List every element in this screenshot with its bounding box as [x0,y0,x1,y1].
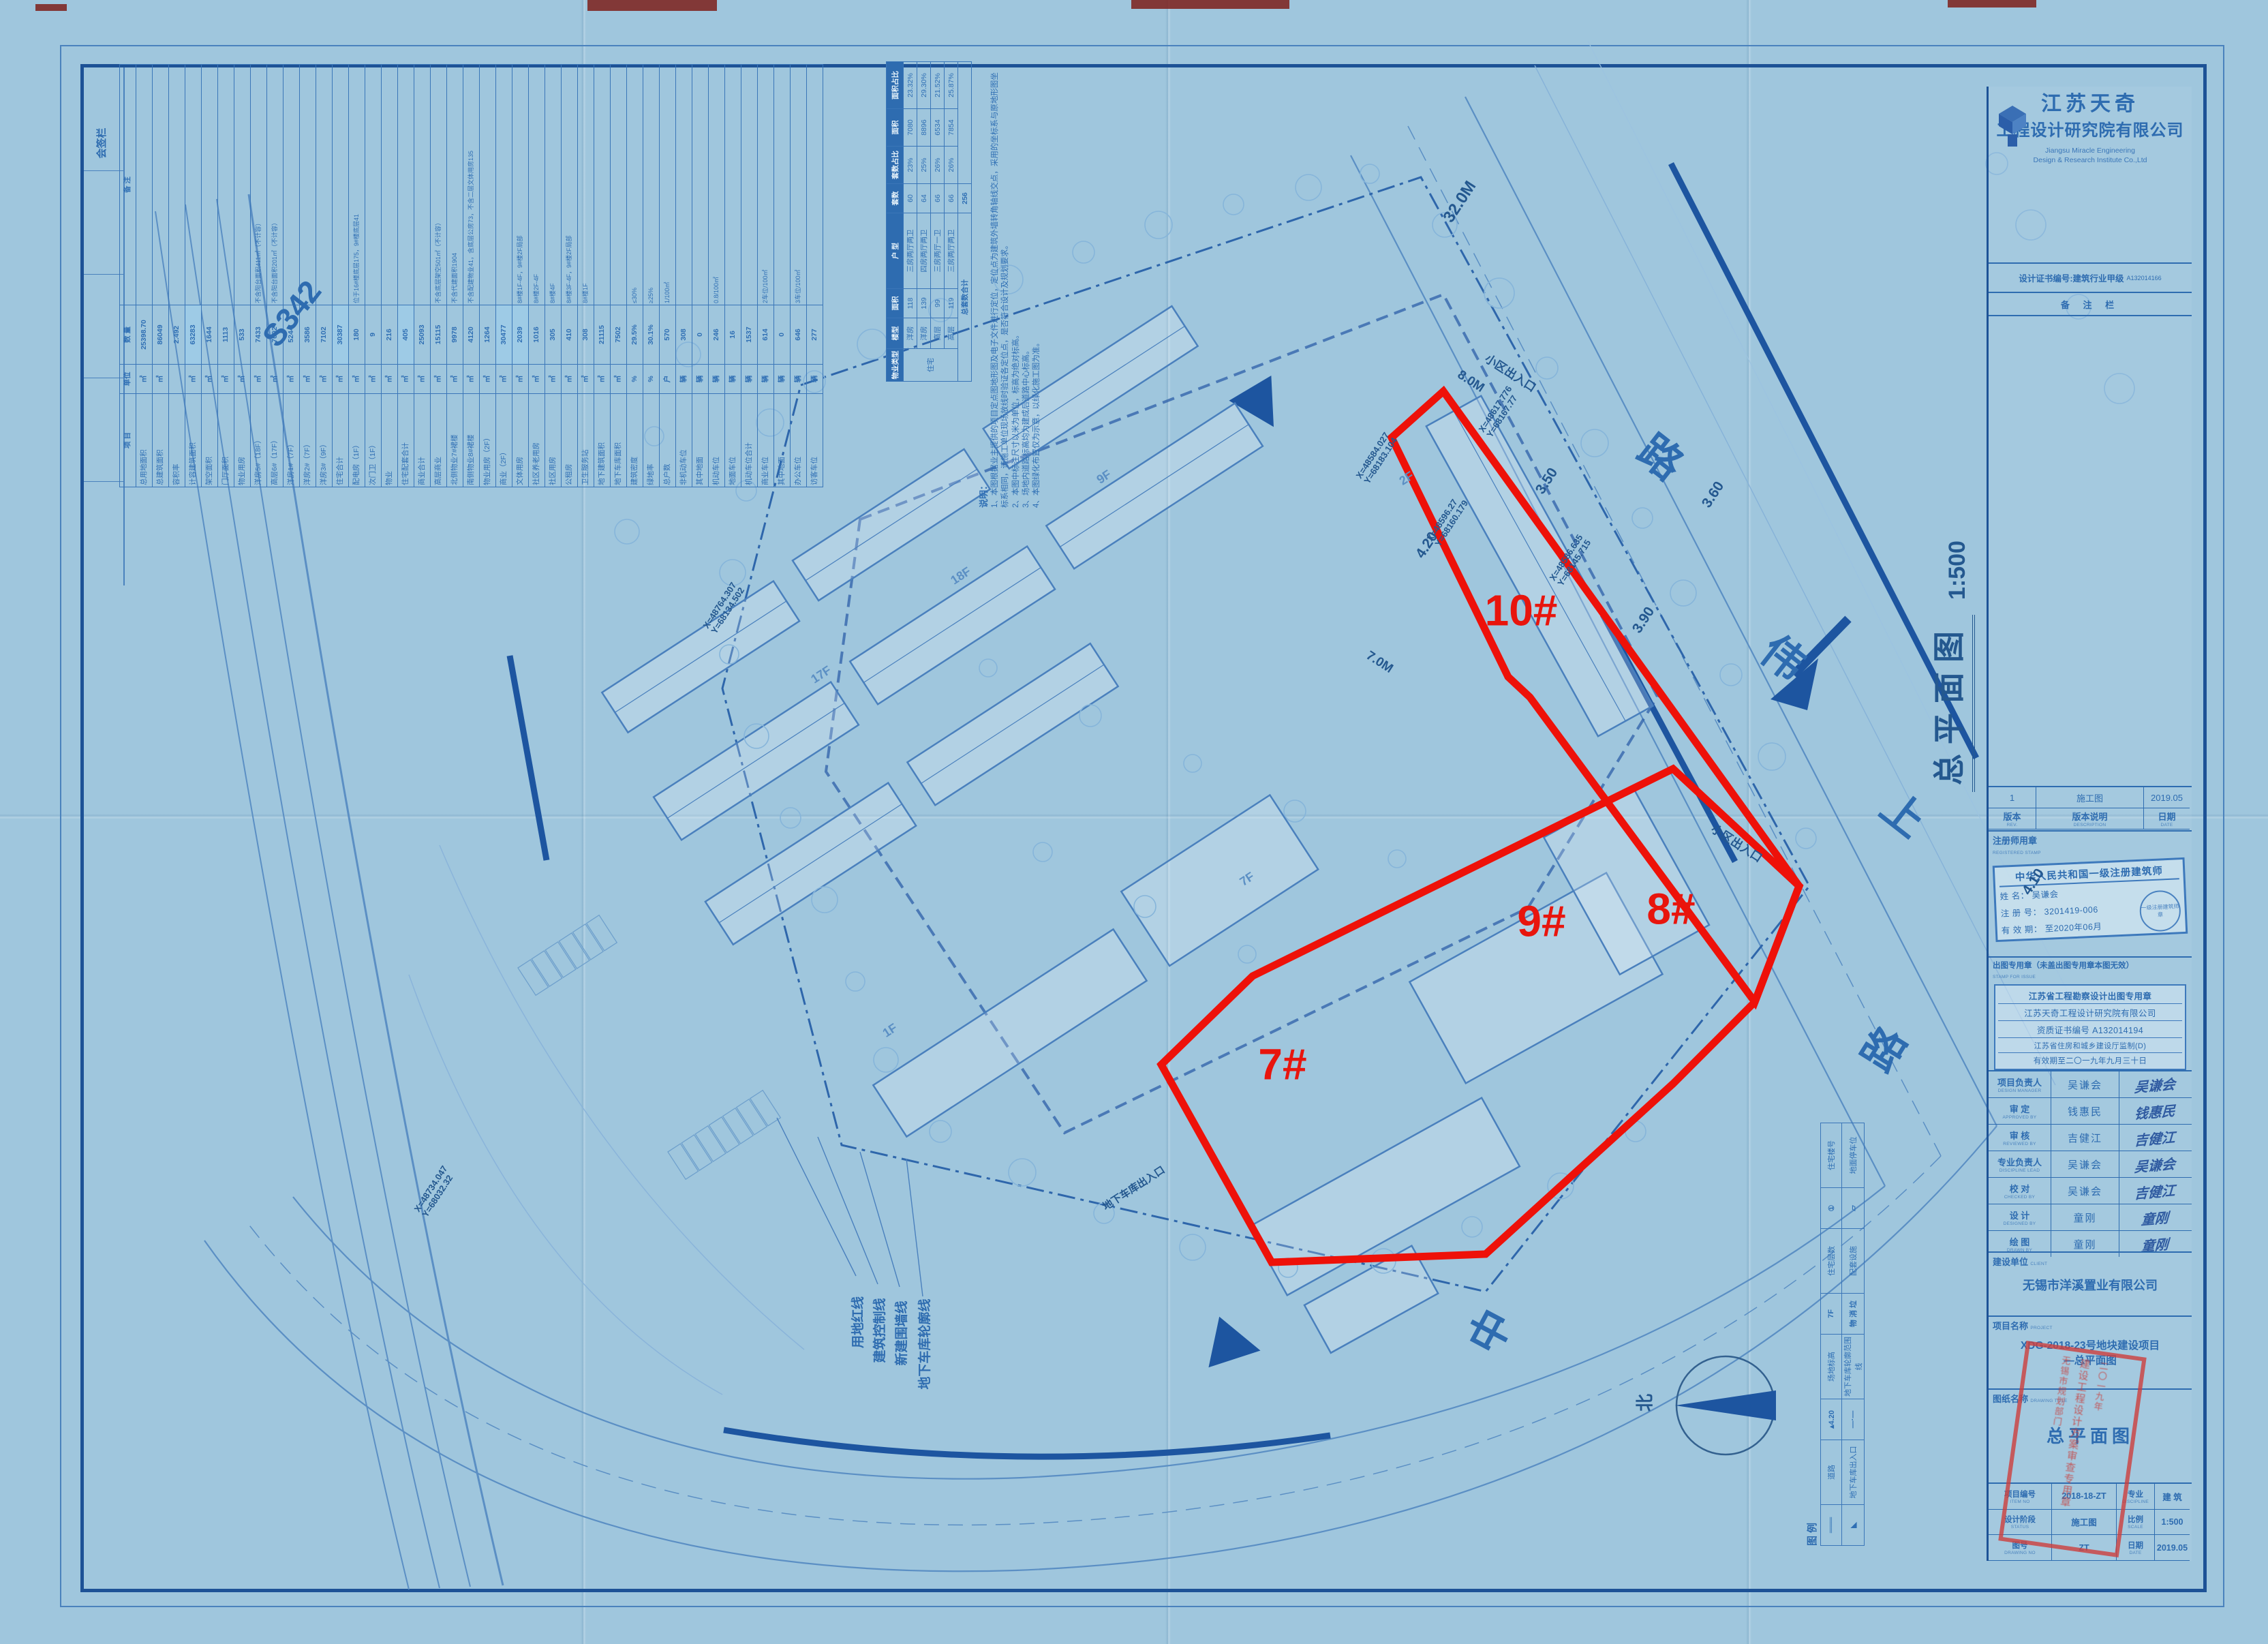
econ-row: 建筑密度%29.5%≤30% [627,65,643,487]
legend-label: 道路 [1821,1440,1842,1505]
econ-row: 住宅合计㎡30387 [333,65,349,487]
parking-stalls [668,1091,780,1180]
unit-row: 高层119三房两厅两卫6626%785425.87% [945,62,958,382]
company-logo-icon [1989,104,2036,148]
note-item: 3、场地内道路标高均为建成后道路中心标高。 [1022,72,1032,508]
company-section: 江苏天奇 工程设计研究院有限公司 Jiangsu Miracle Enginee… [1989,87,2192,262]
econ-row: 绿地率%30.1%≥25% [643,65,660,487]
unit-row: 住宅洋房118三房两厅两卫6023%708023.32% [904,62,917,382]
info-grid-cell: 1:500 [2155,1510,2190,1536]
econ-row: 商业车位辆6142车位/100㎡ [758,65,774,487]
plan-annotation: 北 [1636,1394,1654,1412]
note-item: 1、本图根据业主提供的项目定点图地形图及电子文件进行定位，定位点为建筑外墙转角轴… [990,72,1011,508]
econ-row: 访客车位辆277 [807,65,823,487]
unit-row: 洋房139四房两厅两卫6425%889629.30% [917,62,931,382]
building-number-label: 7# [1258,1041,1306,1087]
econ-row: 办公车位辆6463车位/100㎡ [791,65,807,487]
econ-header-cell: 单位 [120,365,136,394]
economic-indicators-block: 项 目单位数 量备 注 总用地面积㎡25398.70总建筑面积㎡86049容积率… [119,64,823,487]
econ-row: 其中地面辆0 [774,65,791,487]
econ-row: 总用地面积㎡25398.70 [136,65,153,487]
notes-block: 说明： 1、本图根据业主提供的项目定点图地形图及电子文件进行定位，定位点为建筑外… [978,72,1042,508]
unit-header-cell: 户 型 [887,213,904,289]
econ-row: 架空面积㎡1644 [202,65,218,487]
remark-label: 备 注 栏 [1989,293,2192,315]
econ-row: 门厅面积㎡1113 [218,65,234,487]
note-item: 4、本图绿化布置仅为示意，以绿化施工图为准。 [1032,72,1042,508]
company-name-en2: Design & Research Institute Co.,Ltd [1989,155,2192,165]
unit-header-cell: 楼型 [887,318,904,349]
econ-row: 高层6#（17F）㎡7002不含阳台面积201㎡（不计容） [267,65,283,487]
econ-row: 计容建筑面积㎡63283 [185,65,202,487]
unit-header-cell: 面积 [887,289,904,318]
econ-row: 地面车位辆16 [725,65,741,487]
issue-stamp: 江苏省工程勘察设计出图专用章 江苏天奇工程设计研究院有限公司 资质证书编号 A1… [1994,984,2186,1070]
econ-row: 社区养老用房㎡10168#楼2F-4F [529,65,545,487]
unit-total-row: 总套数合计256 [958,62,972,382]
legend-label: 住宅层数 [1821,1229,1842,1294]
cert-row: 设计证书编号:建筑行业甲级A132014166 [1989,262,2192,292]
econ-row: 物业用房㎡533 [234,65,251,487]
note-item: 2、本图中标注尺寸以米为单位，标高为绝对标高。 [1011,72,1022,508]
econ-row: 洋房5#（18F）㎡7433不含阳台面积411㎡（不计容） [251,65,267,487]
plan-annotation: 用地红线 [852,1296,865,1348]
econ-row: 机动车位辆2460.8/100㎡ [709,65,725,487]
legend-label: 地下车库出入口 [1842,1440,1865,1505]
signature-row: 项目负责人DESIGN MANAGER吴谦会吴谦会 [1989,1071,2192,1098]
legend-label: 场地标高 [1821,1335,1842,1399]
econ-row: 容积率2.492 [169,65,185,487]
unit-header-cell: 面积 [887,109,904,147]
unit-header-cell: 面积占比 [887,62,904,109]
issue-stamp-label-cn: 出图专用章（未盖出图专用章本图无效） [1993,962,2134,970]
econ-row: 住宅配套合计㎡405 [398,65,414,487]
econ-row: 北侧物业7#裙楼㎡9978不含代建面积1904 [447,65,463,487]
info-grid-cell: 日期DATE [2117,1535,2155,1561]
legend-symbol: —·— [1842,1399,1865,1440]
unit-row: 高层99三房两厅一卫6626%653421.52% [931,62,945,382]
title-block: 江苏天奇 工程设计研究院有限公司 Jiangsu Miracle Enginee… [1987,87,2192,1561]
notes-title: 说明： [979,481,989,508]
legend-row: ═══道路▴4.20场地标高7F住宅层数①住宅楼号 [1821,1123,1842,1546]
rev-desc: 施工图 [2036,787,2144,808]
info-grid-cell: 建 筑 [2155,1484,2190,1510]
client-label-en: CLIENT [2030,1262,2047,1266]
legend-table: ═══道路▴4.20场地标高7F住宅层数①住宅楼号◣地下车库出入口—·—地下车库… [1820,1123,1865,1546]
econ-row: 社区用房㎡3058#楼4F [545,65,562,487]
legend-symbol: 物 消 垃 [1842,1294,1865,1335]
client-name: 无锡市洋溪置业有限公司 [1989,1276,2192,1294]
building-number-label: 10# [1485,588,1558,633]
registered-architect-stamp: 中华人民共和国一级注册建筑师 姓 名： 吴谦会 注 册 号： 3201419-0… [1993,857,2188,942]
project-label-cn: 项目名称 [1993,1321,2028,1331]
legend-symbol: ═══ [1821,1505,1842,1546]
rev-no: 1 [1989,787,2036,808]
entrance-arrow [1195,1308,1260,1367]
econ-row: 总建筑面积㎡86049 [153,65,169,487]
legend-title: 图例 [1805,1151,1819,1546]
unit-mix-block: 物业类型楼型面积户 型套数套数占比面积面积占比 住宅洋房118三房两厅两卫602… [886,61,972,382]
sheet-title-text: 总平面图 [1925,615,1975,792]
legend-row: ◣地下车库出入口—·—地下车库轮廓范围线物 消 垃配套设施▱地面停车位 [1842,1123,1865,1546]
compass-needle-icon [1675,1390,1776,1420]
econ-row: 公租房㎡4108#楼3F-4F，9#楼2F局部 [562,65,578,487]
client-section: 建设单位 CLIENT 无锡市洋溪置业有限公司 [1989,1251,2192,1315]
parking-stalls [518,915,617,996]
legend-symbol: ① [1821,1188,1842,1229]
remark-space [1989,315,2192,786]
project-label-en: PROJECT [2030,1326,2052,1330]
blueprint-sheet: 项 目单位数 量备 注 总用地面积㎡25398.70总建筑面积㎡86049容积率… [0,0,2268,1644]
signature-row: 审 核REVIEWED BY吉健江吉健江 [1989,1125,2192,1151]
rev-date: 2019.05 [2144,787,2190,808]
econ-row: 商业合计㎡25093 [414,65,431,487]
econ-row: 非机动车位辆308 [676,65,692,487]
unit-header-cell: 物业类型 [887,349,904,382]
econ-row: 洋房3#（9F）㎡7102 [316,65,333,487]
legend-symbol: ◣ [1842,1505,1865,1546]
econ-row: 物业用房（2F）㎡1264 [480,65,496,487]
info-grid-cell: 2019.05 [2155,1535,2190,1561]
econ-row: 地下建筑面积㎡21115 [594,65,611,487]
econ-row: 文体用房㎡20398#楼1F-4F，9#楼2F局部 [512,65,529,487]
cert-label: 设计证书编号:建筑行业甲级 [2019,271,2124,284]
econ-row: 洋房1#（7F）㎡5244 [283,65,300,487]
reg-stamp-label-en: REGISTERED STAMP [1993,851,2041,855]
legend-symbol: ▱ [1842,1188,1865,1229]
econ-header-cell: 项 目 [120,394,136,487]
signature-row: 专业负责人DISCIPLINE LEAD吴谦会吴谦会 [1989,1151,2192,1178]
unit-header-cell: 套数 [887,184,904,213]
signature-row: 审 定APPROVED BY钱惠民钱惠民 [1989,1098,2192,1125]
legend-label: 配套设施 [1842,1229,1865,1294]
sheet-title-scale: 1:500 [1944,541,1975,600]
issue-stamp-label-en: STAMP FOR ISSUE [1993,975,2036,979]
economic-indicators-table: 项 目单位数 量备 注 总用地面积㎡25398.70总建筑面积㎡86049容积率… [119,64,823,487]
econ-header-cell: 备 注 [120,65,136,305]
econ-row: 总户数户5701/100㎡ [660,65,676,487]
unit-mix-table: 物业类型楼型面积户 型套数套数占比面积面积占比 住宅洋房118三房两厅两卫602… [886,61,972,382]
plan-annotation: 地下车库轮廓线 [919,1298,932,1389]
client-label-cn: 建设单位 [1993,1257,2028,1267]
revision-table: 1 施工图 2019.05 版本REV. 版本说明DESCRIPTION 日期D… [1989,786,2192,830]
sheet-title: 总平面图 1:500 [1927,301,1975,792]
signature-row: 校 对CHECKED BY吴谦会吉健江 [1989,1178,2192,1204]
econ-row: 配电房（1F）㎡180位于16#楼底层175，9#楼底层41 [349,65,365,487]
building-10 [1426,396,1653,736]
econ-row: 次门卫（1F）㎡9 [365,65,382,487]
plan-annotation: 会签栏 [97,127,108,158]
plan-annotation: 建筑控制线 [874,1298,887,1363]
unit-header-cell: 套数占比 [887,147,904,184]
econ-row: 卫生服务站㎡3088#楼1F [578,65,594,487]
registered-stamp-section: 注册师用章REGISTERED STAMP 中华人民共和国一级注册建筑师 姓 名… [1989,830,2192,956]
legend-symbol: ▴4.20 [1821,1399,1842,1440]
plan-annotation: 新建围墙线 [895,1300,909,1365]
econ-row: 物业㎡216 [382,65,398,487]
econ-header-cell: 数 量 [120,305,136,365]
econ-row: 其中地面辆0 [692,65,709,487]
legend-label: 住宅楼号 [1821,1123,1842,1188]
cert-number: A132014166 [2127,275,2162,281]
reg-stamp-label-cn: 注册师用章 [1993,836,2037,846]
econ-row: 南侧物业8#裙楼㎡4120不含配建物业41，含底层公房73，不含二层文体用房13… [463,65,480,487]
legend-label: 地下车库轮廓范围线 [1842,1335,1865,1399]
remark-label-row: 备 注 栏 [1989,292,2192,315]
econ-row: 商业（2F）㎡30477 [496,65,512,487]
issue-stamp-section: 出图专用章（未盖出图专用章本图无效）STAMP FOR ISSUE 江苏省工程勘… [1989,956,2192,1070]
signature-row: 设 计DESIGNED BY童刚童刚 [1989,1204,2192,1231]
legend-block: 图例 ═══道路▴4.20场地标高7F住宅层数①住宅楼号◣地下车库出入口—·—地… [1805,1151,1865,1546]
signature-table: 项目负责人DESIGN MANAGER吴谦会吴谦会审 定APPROVED BY钱… [1989,1070,2192,1251]
econ-row: 地下车库面积㎡7502 [611,65,627,487]
econ-row: 机动车位合计辆1537 [741,65,758,487]
building-number-label: 8# [1646,886,1695,932]
legend-symbol: 7F [1821,1294,1842,1335]
building-number-label: 9# [1517,898,1565,944]
econ-row: 高层商业㎡15115不含底层架空501㎡（不计容） [431,65,447,487]
legend-label: 地面停车位 [1842,1123,1865,1188]
